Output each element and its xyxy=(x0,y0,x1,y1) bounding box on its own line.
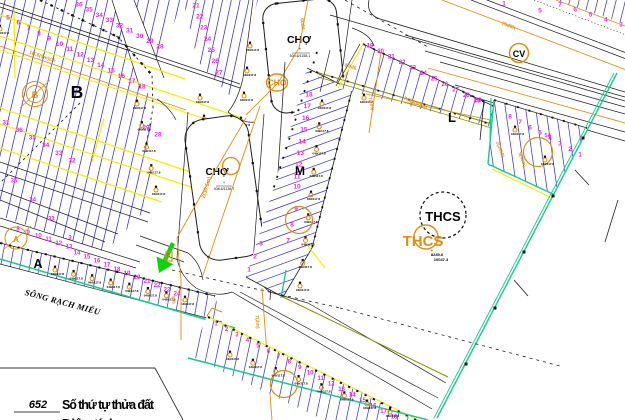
svg-text:049/117.8: 049/117.8 xyxy=(386,414,400,418)
svg-text:18: 18 xyxy=(138,83,146,90)
svg-text:16: 16 xyxy=(118,73,126,80)
svg-text:A: A xyxy=(33,257,42,271)
svg-text:5: 5 xyxy=(538,130,542,137)
svg-text:33: 33 xyxy=(55,150,63,157)
svg-text:22: 22 xyxy=(196,14,204,21)
svg-text:+: + xyxy=(431,248,434,253)
svg-text:049/117.8: 049/117.8 xyxy=(138,128,152,132)
svg-text:13: 13 xyxy=(87,57,95,64)
svg-text:049/117.8: 049/117.8 xyxy=(318,106,332,110)
svg-text:1: 1 xyxy=(502,0,506,7)
svg-text:5: 5 xyxy=(538,7,542,14)
svg-text:26: 26 xyxy=(212,58,220,65)
svg-text:34: 34 xyxy=(96,12,104,19)
svg-text:19: 19 xyxy=(367,43,374,49)
svg-text:10: 10 xyxy=(35,234,42,240)
svg-text:31: 31 xyxy=(126,28,134,35)
svg-text:29: 29 xyxy=(474,97,482,104)
svg-text:27: 27 xyxy=(452,87,459,93)
svg-text:13: 13 xyxy=(66,244,73,250)
svg-text:049/117.8: 049/117.8 xyxy=(243,73,257,77)
svg-text:M: M xyxy=(295,164,305,178)
svg-text:049/117.8: 049/117.8 xyxy=(226,357,240,361)
svg-text:049/117.8: 049/117.8 xyxy=(181,302,195,306)
svg-text:Số thứ tự thửa đất: Số thứ tự thửa đất xyxy=(62,398,155,412)
svg-text:049/117.8: 049/117.8 xyxy=(88,281,102,285)
svg-text:049/117.8: 049/117.8 xyxy=(511,132,525,136)
svg-text:23: 23 xyxy=(409,65,416,71)
svg-text:B: B xyxy=(71,82,84,102)
svg-text:049/117.8: 049/117.8 xyxy=(272,373,286,377)
svg-text:16: 16 xyxy=(94,259,101,265)
svg-text:049/117.8: 049/117.8 xyxy=(125,289,139,293)
svg-text:10: 10 xyxy=(293,183,301,190)
svg-text:THCS: THCS xyxy=(403,233,444,250)
svg-text:21: 21 xyxy=(144,279,151,285)
svg-text:22: 22 xyxy=(154,283,161,289)
svg-text:049/117.8: 049/117.8 xyxy=(196,100,210,104)
svg-text:21: 21 xyxy=(388,54,395,60)
svg-text:A: A xyxy=(13,235,19,244)
svg-text:8: 8 xyxy=(37,30,41,37)
svg-text:10: 10 xyxy=(307,371,314,377)
svg-text:049/117.8: 049/117.8 xyxy=(315,129,329,133)
svg-text:31: 31 xyxy=(2,119,10,126)
svg-text:3: 3 xyxy=(259,240,263,247)
svg-text:11: 11 xyxy=(45,237,52,243)
svg-text:4: 4 xyxy=(604,16,608,23)
svg-text:21: 21 xyxy=(192,2,200,9)
svg-text:27: 27 xyxy=(215,69,223,76)
svg-text:049/117.8: 049/117.8 xyxy=(240,98,254,102)
svg-text:60đ4: 60đ4 xyxy=(298,18,305,30)
svg-text:049/117.8: 049/117.8 xyxy=(340,398,354,402)
svg-text:049/117.8: 049/117.8 xyxy=(312,152,326,156)
svg-text:049/117.8: 049/117.8 xyxy=(310,174,324,178)
svg-text:34: 34 xyxy=(42,142,50,149)
svg-text:049/117.8: 049/117.8 xyxy=(246,48,260,52)
svg-text:049/117.8: 049/117.8 xyxy=(295,381,309,385)
svg-text:22: 22 xyxy=(399,60,406,66)
svg-text:THCS: THCS xyxy=(425,209,461,224)
svg-text:19: 19 xyxy=(124,271,131,277)
svg-text:15: 15 xyxy=(107,68,115,75)
svg-text:10: 10 xyxy=(56,41,64,48)
svg-text:049/117.8: 049/117.8 xyxy=(299,265,313,269)
svg-text:16: 16 xyxy=(302,115,310,122)
svg-text:049/117.8: 049/117.8 xyxy=(147,171,161,175)
svg-text:6: 6 xyxy=(16,20,20,27)
svg-text:8: 8 xyxy=(290,221,294,228)
svg-text:049/117.8: 049/117.8 xyxy=(307,197,321,201)
svg-text:7: 7 xyxy=(518,119,522,126)
svg-text:32: 32 xyxy=(68,157,76,164)
svg-text:12: 12 xyxy=(328,382,335,388)
svg-text:049/117.8: 049/117.8 xyxy=(51,272,65,276)
svg-text:24: 24 xyxy=(204,36,212,43)
svg-text:1: 1 xyxy=(578,151,582,158)
svg-text:7(2m): 7(2m) xyxy=(253,315,260,329)
svg-text:17: 17 xyxy=(104,263,111,269)
svg-text:L: L xyxy=(448,110,456,125)
svg-text:14: 14 xyxy=(97,62,105,69)
svg-text:5A: 5A xyxy=(544,133,551,139)
svg-text:5: 5 xyxy=(6,14,10,21)
svg-text:10047.3: 10047.3 xyxy=(434,257,449,262)
svg-text:35: 35 xyxy=(29,135,37,142)
svg-text:409.6/1158.1: 409.6/1158.1 xyxy=(290,54,311,58)
svg-text:26: 26 xyxy=(442,82,449,88)
svg-text:049/117.8: 049/117.8 xyxy=(541,162,555,166)
svg-text:049/117.8: 049/117.8 xyxy=(296,288,310,292)
svg-text:17: 17 xyxy=(128,78,136,85)
svg-text:049/117.8: 049/117.8 xyxy=(107,285,121,289)
svg-text:25: 25 xyxy=(431,76,438,82)
svg-text:33: 33 xyxy=(48,216,55,222)
svg-text:8: 8 xyxy=(508,113,512,120)
svg-text:29: 29 xyxy=(146,38,154,45)
svg-text:23: 23 xyxy=(200,25,208,32)
svg-text:049/117.8: 049/117.8 xyxy=(0,31,9,35)
svg-text:049/117.8: 049/117.8 xyxy=(363,406,377,410)
svg-text:049/117.8: 049/117.8 xyxy=(317,390,331,394)
svg-text:049/117.8: 049/117.8 xyxy=(152,192,166,196)
svg-text:18: 18 xyxy=(114,267,121,273)
svg-text:7: 7 xyxy=(286,237,290,244)
svg-text:28: 28 xyxy=(154,131,162,138)
svg-text:049/117.8: 049/117.8 xyxy=(142,149,156,153)
svg-text:36: 36 xyxy=(16,127,24,134)
svg-text:20: 20 xyxy=(377,49,384,55)
svg-text:28: 28 xyxy=(463,93,470,99)
svg-text:13: 13 xyxy=(297,150,305,157)
svg-text:12: 12 xyxy=(77,52,85,59)
svg-text:652: 652 xyxy=(29,399,47,411)
svg-text:15: 15 xyxy=(84,255,91,261)
svg-text:2: 2 xyxy=(253,253,257,260)
svg-text:18: 18 xyxy=(305,91,313,98)
svg-text:33: 33 xyxy=(106,17,114,24)
svg-text:30: 30 xyxy=(136,33,144,40)
svg-text:34: 34 xyxy=(29,197,36,203)
svg-text:CV: CV xyxy=(513,49,526,59)
svg-text:24: 24 xyxy=(420,71,427,77)
svg-text:12: 12 xyxy=(55,241,62,247)
svg-text:049/117.8: 049/117.8 xyxy=(70,276,84,280)
svg-text:6: 6 xyxy=(528,124,532,131)
svg-text:32: 32 xyxy=(116,22,124,29)
svg-text:049/117.8: 049/117.8 xyxy=(249,365,263,369)
svg-text:3: 3 xyxy=(558,141,562,148)
svg-text:15: 15 xyxy=(300,127,308,134)
svg-text:36: 36 xyxy=(75,1,83,8)
svg-text:14: 14 xyxy=(298,138,306,145)
svg-text:14: 14 xyxy=(74,250,81,256)
svg-text:7: 7 xyxy=(27,25,31,32)
svg-text:049/117.8: 049/117.8 xyxy=(133,106,147,110)
svg-text:Diện tích: Diện tích xyxy=(62,416,117,420)
svg-text:049/117.8: 049/117.8 xyxy=(304,220,318,224)
svg-text:9: 9 xyxy=(47,36,51,43)
svg-text:25: 25 xyxy=(208,47,216,54)
svg-text:28: 28 xyxy=(156,43,164,50)
svg-text:1: 1 xyxy=(247,266,251,273)
svg-text:11: 11 xyxy=(66,46,73,53)
svg-text:049/117.8: 049/117.8 xyxy=(144,293,158,297)
svg-text:2: 2 xyxy=(568,146,572,153)
svg-text:CHỢ: CHỢ xyxy=(287,34,311,46)
svg-text:35: 35 xyxy=(11,178,18,184)
svg-text:11: 11 xyxy=(318,376,325,382)
svg-text:35: 35 xyxy=(85,7,93,14)
svg-text:20: 20 xyxy=(134,275,141,281)
svg-text:5đ0: 5đ0 xyxy=(171,296,177,305)
svg-text:17: 17 xyxy=(304,103,312,110)
